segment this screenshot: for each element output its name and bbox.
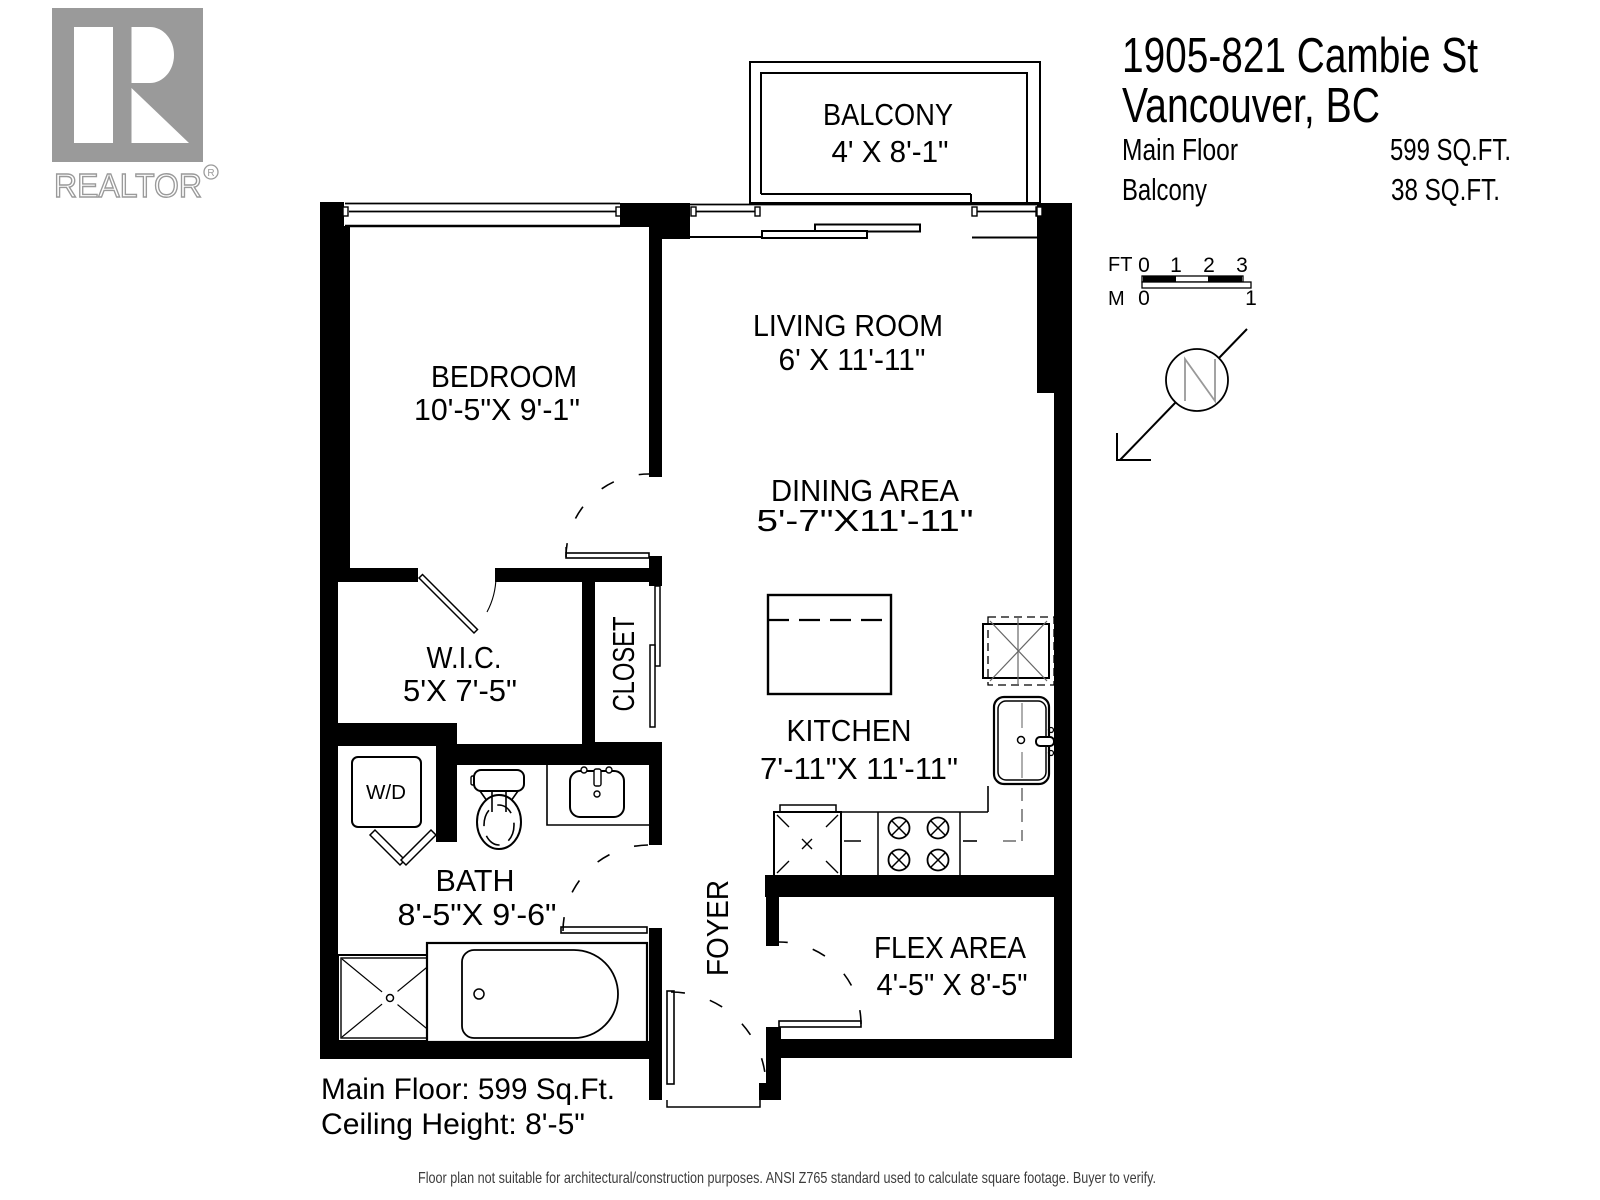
svg-text:7'-11"X 11'-11": 7'-11"X 11'-11" <box>760 751 958 786</box>
svg-text:BATH: BATH <box>436 863 515 898</box>
svg-text:FOYER: FOYER <box>700 880 735 976</box>
svg-text:0: 0 <box>1138 287 1150 310</box>
svg-text:M: M <box>1108 288 1125 310</box>
svg-text:38 SQ.FT.: 38 SQ.FT. <box>1391 172 1500 207</box>
svg-text:Ceiling Height: 8'-5": Ceiling Height: 8'-5" <box>321 1108 585 1141</box>
svg-text:4'-5" X 8'-5": 4'-5" X 8'-5" <box>877 967 1028 1002</box>
svg-text:FT: FT <box>1108 254 1132 276</box>
svg-text:2: 2 <box>1203 254 1215 277</box>
svg-text:Vancouver, BC: Vancouver, BC <box>1122 79 1380 133</box>
svg-text:Main Floor: Main Floor <box>1122 132 1238 167</box>
svg-text:BALCONY: BALCONY <box>823 97 953 132</box>
svg-text:5'-7"X11'-11": 5'-7"X11'-11" <box>757 503 974 538</box>
svg-text:LIVING ROOM: LIVING ROOM <box>753 308 943 343</box>
svg-text:1905-821 Cambie St: 1905-821 Cambie St <box>1122 29 1478 83</box>
svg-text:W/D: W/D <box>366 782 406 804</box>
svg-text:REALTOR: REALTOR <box>54 167 202 204</box>
svg-text:599 SQ.FT.: 599 SQ.FT. <box>1390 132 1511 167</box>
svg-text:1: 1 <box>1170 254 1182 277</box>
svg-text:6' X 11'-11": 6' X 11'-11" <box>779 342 926 377</box>
svg-text:W.I.C.: W.I.C. <box>427 640 502 675</box>
svg-text:KITCHEN: KITCHEN <box>787 713 912 748</box>
svg-text:CLOSET: CLOSET <box>606 616 641 711</box>
svg-text:5'X 7'-5": 5'X 7'-5" <box>403 673 517 708</box>
svg-text:BEDROOM: BEDROOM <box>431 359 577 394</box>
svg-text:4' X 8'-1": 4' X 8'-1" <box>832 134 949 169</box>
svg-text:1: 1 <box>1245 287 1257 310</box>
svg-text:FLEX AREA: FLEX AREA <box>874 930 1026 965</box>
svg-text:Floor plan not suitable for ar: Floor plan not suitable for architectura… <box>418 1170 1156 1187</box>
svg-text:8'-5"X 9'-6": 8'-5"X 9'-6" <box>398 897 557 932</box>
svg-text:0: 0 <box>1138 254 1150 277</box>
svg-text:Main Floor: 599 Sq.Ft.: Main Floor: 599 Sq.Ft. <box>321 1073 615 1106</box>
svg-text:3: 3 <box>1236 254 1248 277</box>
svg-text:10'-5"X 9'-1": 10'-5"X 9'-1" <box>414 392 580 427</box>
svg-text:R: R <box>207 168 214 179</box>
svg-text:Balcony: Balcony <box>1122 172 1207 207</box>
